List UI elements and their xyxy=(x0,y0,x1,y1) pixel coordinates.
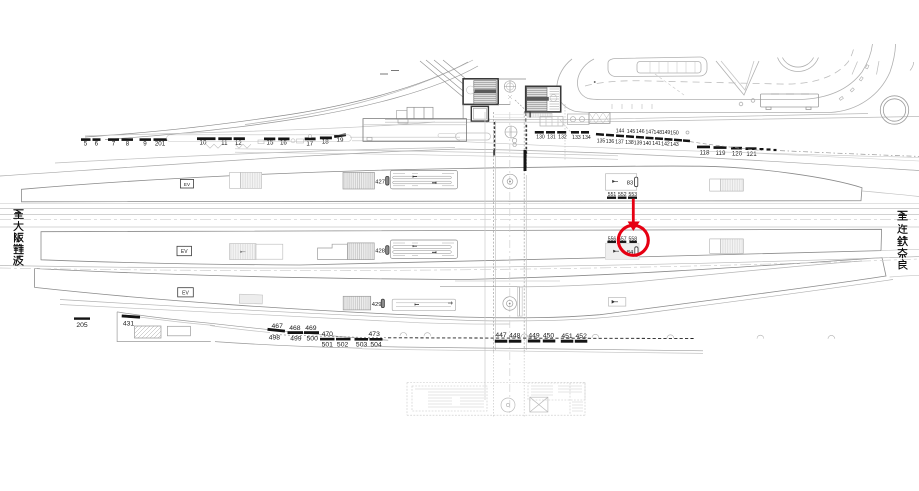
svg-text:427: 427 xyxy=(375,179,385,185)
svg-text:11: 11 xyxy=(221,140,228,147)
svg-text:118: 118 xyxy=(700,150,710,157)
svg-text:499: 499 xyxy=(290,336,302,343)
svg-text:134: 134 xyxy=(582,135,591,141)
svg-text:504: 504 xyxy=(370,341,382,348)
svg-text:EV: EV xyxy=(184,182,191,187)
svg-text:473: 473 xyxy=(369,331,381,338)
svg-text:18: 18 xyxy=(322,139,329,146)
svg-text:139: 139 xyxy=(634,140,643,146)
svg-text:452: 452 xyxy=(576,333,588,340)
svg-text:136: 136 xyxy=(606,139,615,145)
svg-text:501: 501 xyxy=(322,341,334,348)
svg-text:468: 468 xyxy=(289,325,301,332)
svg-text:449: 449 xyxy=(528,333,540,340)
svg-text:205: 205 xyxy=(76,322,88,329)
svg-text:19: 19 xyxy=(337,137,344,144)
svg-text:83: 83 xyxy=(627,180,633,186)
svg-text:431: 431 xyxy=(123,320,135,327)
svg-text:143: 143 xyxy=(670,142,679,148)
svg-text:6: 6 xyxy=(95,140,99,147)
svg-text:144: 144 xyxy=(616,129,625,135)
svg-text:120: 120 xyxy=(732,151,743,158)
svg-text:132: 132 xyxy=(558,135,567,141)
svg-text:138: 138 xyxy=(625,140,634,146)
svg-text:16: 16 xyxy=(280,140,287,147)
svg-text:145: 145 xyxy=(627,129,636,135)
svg-text:5: 5 xyxy=(84,140,88,147)
svg-text:429: 429 xyxy=(372,302,382,308)
svg-text:146: 146 xyxy=(636,129,645,135)
svg-text:131: 131 xyxy=(547,135,556,141)
svg-text:149: 149 xyxy=(662,130,671,136)
svg-text:133: 133 xyxy=(572,135,581,141)
svg-text:135: 135 xyxy=(597,139,606,145)
svg-text:502: 502 xyxy=(337,341,349,348)
svg-text:469: 469 xyxy=(305,325,317,332)
svg-text:137: 137 xyxy=(615,139,624,145)
svg-text:503: 503 xyxy=(356,341,368,348)
svg-text:EV: EV xyxy=(182,291,189,297)
svg-text:498: 498 xyxy=(269,335,281,342)
svg-text:201: 201 xyxy=(155,140,166,147)
svg-text:9: 9 xyxy=(143,140,147,147)
svg-text:470: 470 xyxy=(322,331,334,338)
svg-text:7: 7 xyxy=(112,140,116,147)
svg-text:EV: EV xyxy=(181,249,188,255)
svg-text:141: 141 xyxy=(652,141,661,147)
svg-text:448: 448 xyxy=(509,332,521,339)
svg-text:150: 150 xyxy=(670,131,679,137)
svg-text:15: 15 xyxy=(267,140,274,147)
svg-text:10: 10 xyxy=(200,140,207,147)
svg-text:500: 500 xyxy=(307,336,319,343)
svg-text:142: 142 xyxy=(661,142,670,148)
svg-text:119: 119 xyxy=(716,150,726,157)
svg-text:447: 447 xyxy=(495,332,507,339)
svg-text:8: 8 xyxy=(126,140,130,147)
svg-text:140: 140 xyxy=(643,141,652,147)
svg-text:451: 451 xyxy=(561,333,573,340)
svg-text:121: 121 xyxy=(746,151,757,158)
svg-text:450: 450 xyxy=(543,333,555,340)
svg-text:130: 130 xyxy=(536,135,545,141)
svg-text:428: 428 xyxy=(375,249,385,255)
